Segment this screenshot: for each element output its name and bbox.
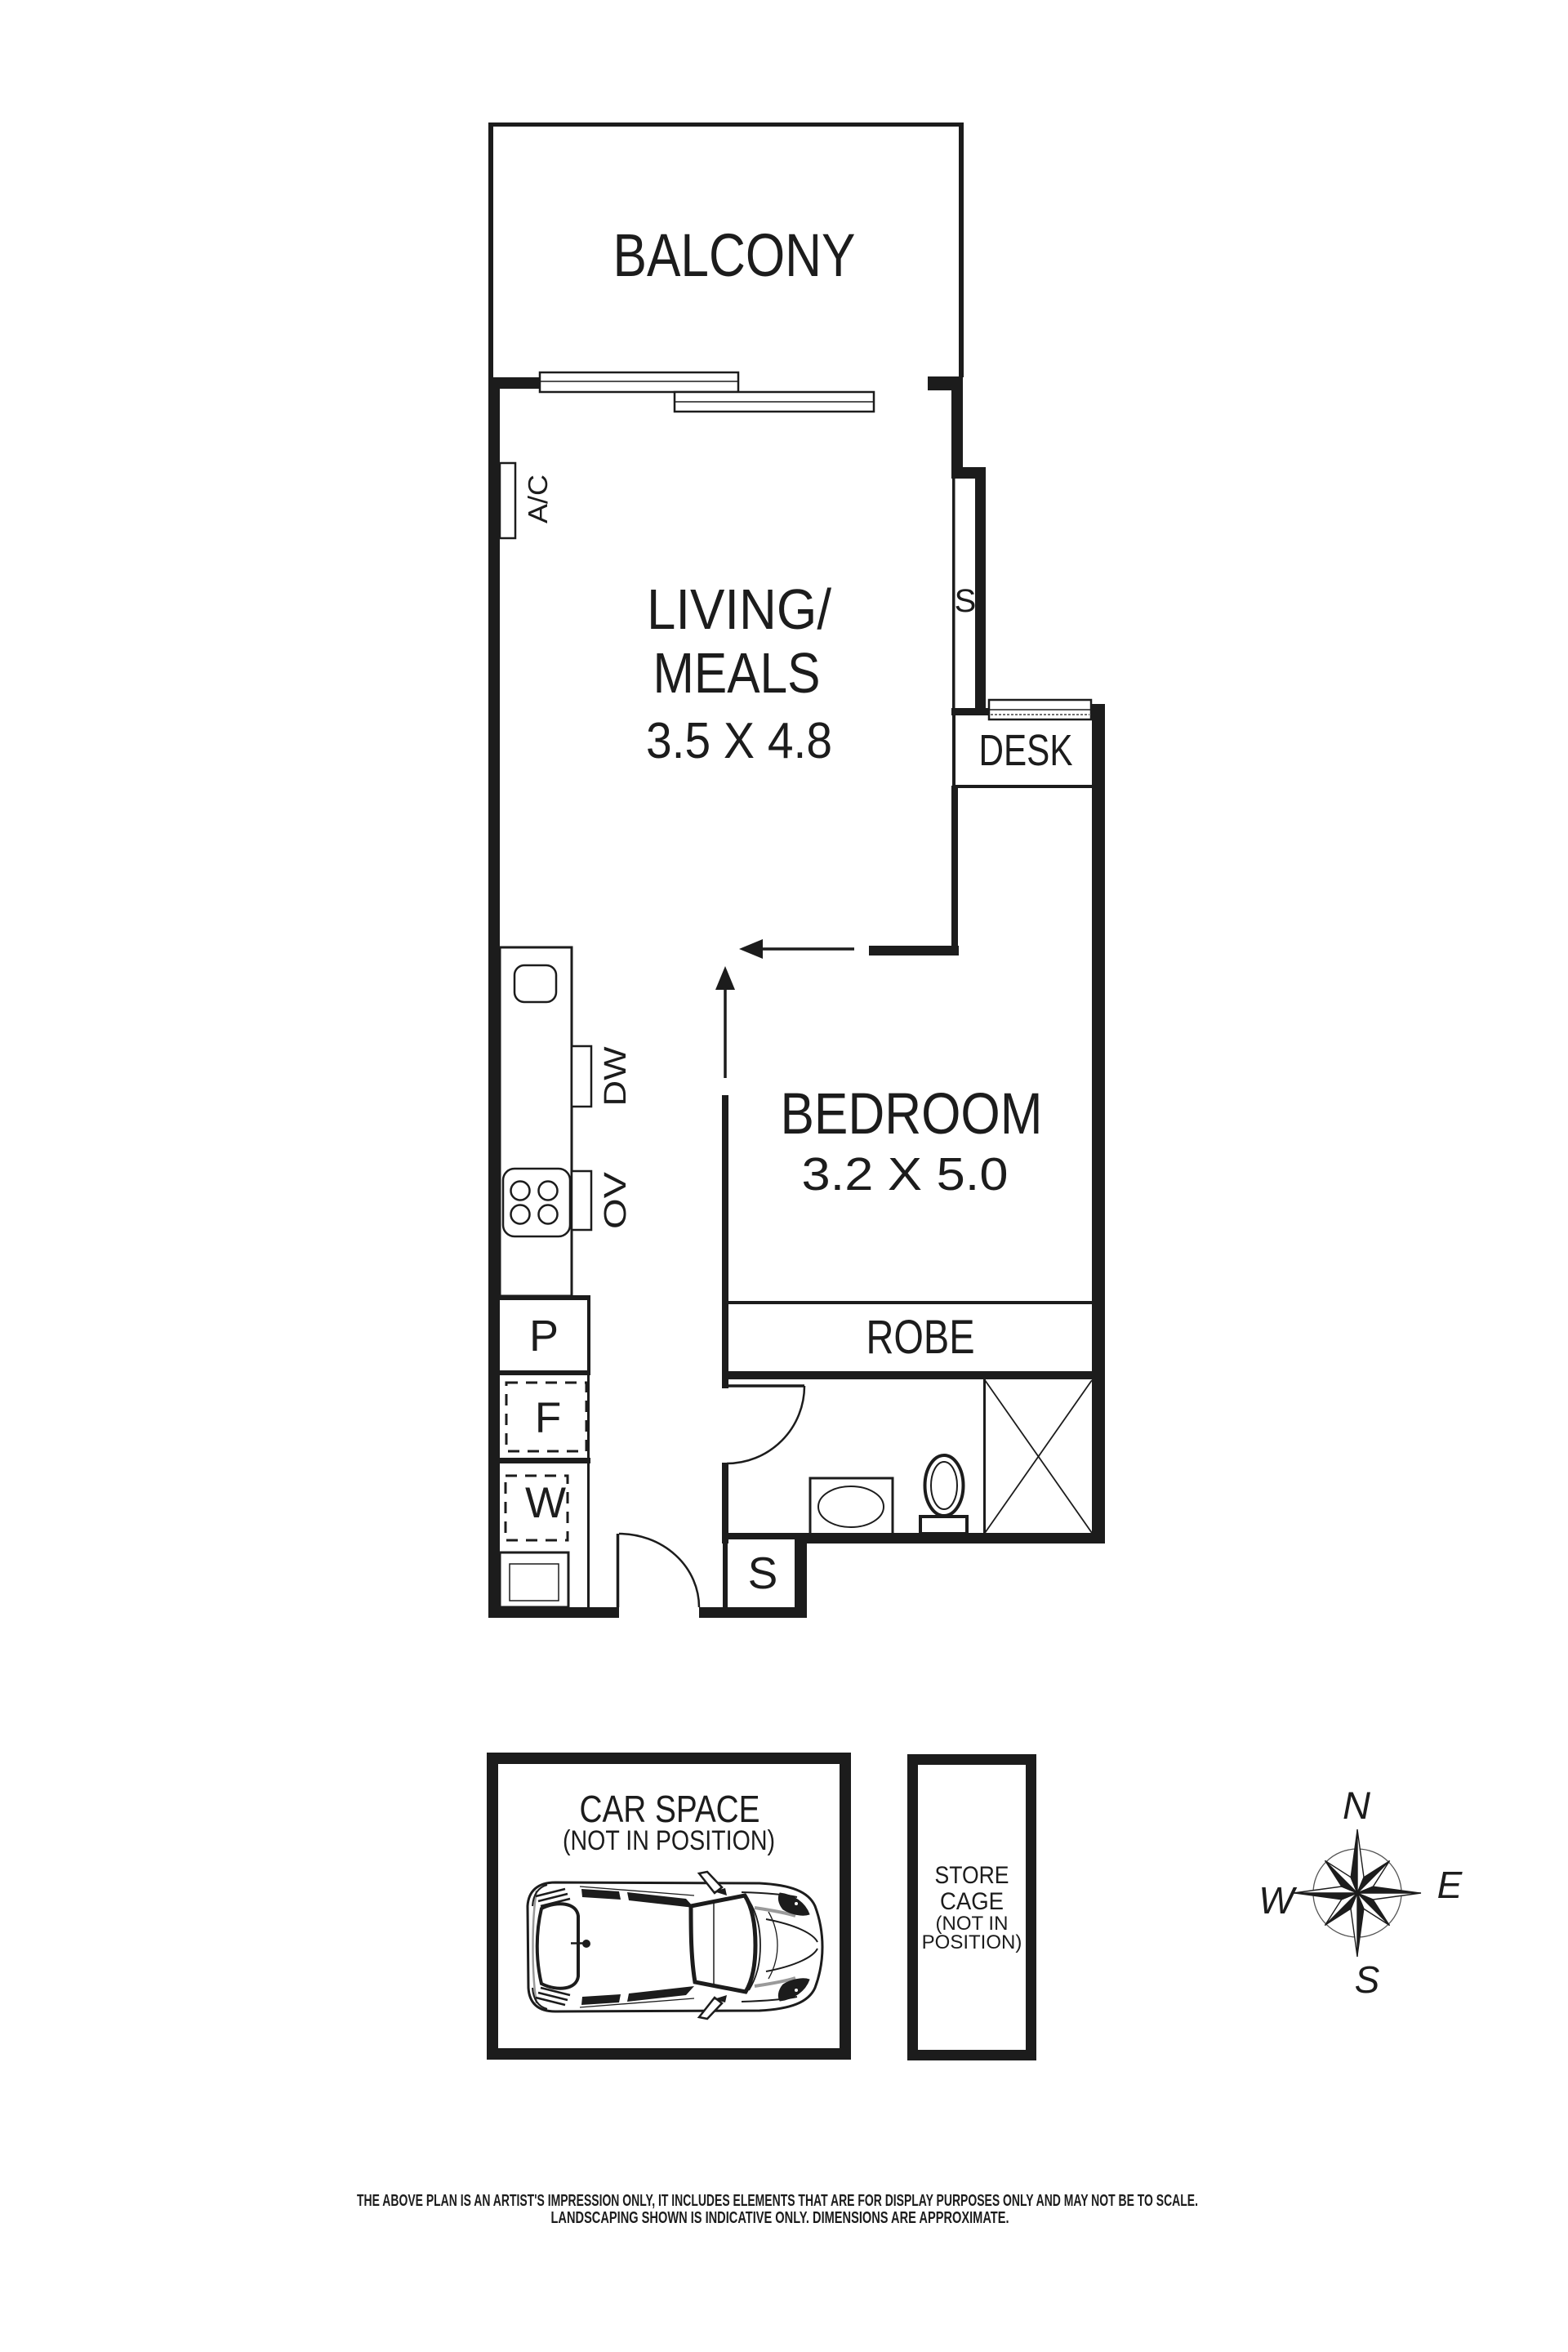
- svg-text:DW: DW: [599, 1046, 633, 1106]
- svg-text:3.2 X 5.0: 3.2 X 5.0: [802, 1148, 1009, 1200]
- svg-text:LIVING/: LIVING/: [647, 577, 831, 641]
- svg-text:A/C: A/C: [523, 474, 553, 523]
- svg-text:3.5 X 4.8: 3.5 X 4.8: [646, 713, 832, 769]
- svg-text:BALCONY: BALCONY: [613, 221, 856, 289]
- svg-text:CAR SPACE: CAR SPACE: [580, 1788, 760, 1830]
- svg-text:THE ABOVE PLAN IS AN ARTIST'S: THE ABOVE PLAN IS AN ARTIST'S IMPRESSION…: [357, 2191, 1198, 2210]
- svg-text:DESK: DESK: [979, 726, 1073, 775]
- svg-text:BEDROOM: BEDROOM: [781, 1082, 1043, 1147]
- svg-text:P: P: [529, 1312, 559, 1361]
- svg-text:S: S: [955, 583, 977, 619]
- svg-text:OV: OV: [599, 1171, 633, 1229]
- svg-text:(NOT IN POSITION): (NOT IN POSITION): [563, 1825, 775, 1856]
- svg-text:MEALS: MEALS: [653, 641, 821, 705]
- svg-text:S: S: [1355, 1958, 1380, 2001]
- svg-text:S: S: [748, 1548, 778, 1598]
- svg-text:N: N: [1343, 1784, 1370, 1827]
- svg-text:CAGE: CAGE: [940, 1888, 1004, 1915]
- svg-text:STORE: STORE: [935, 1862, 1009, 1889]
- svg-text:ROBE: ROBE: [866, 1311, 975, 1364]
- svg-text:W: W: [525, 1479, 566, 1527]
- svg-text:LANDSCAPING SHOWN IS INDICATIV: LANDSCAPING SHOWN IS INDICATIVE ONLY. DI…: [551, 2208, 1009, 2227]
- svg-text:E: E: [1437, 1864, 1463, 1906]
- svg-text:POSITION): POSITION): [922, 1931, 1022, 1953]
- svg-text:F: F: [535, 1394, 561, 1442]
- svg-text:W: W: [1258, 1879, 1298, 1922]
